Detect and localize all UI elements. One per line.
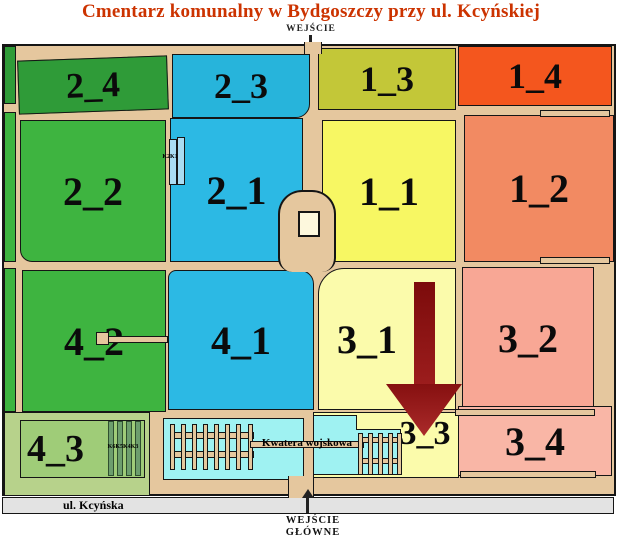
top-entrance-gap <box>304 42 322 54</box>
section-2-4: 2_4 <box>17 55 169 114</box>
section-1-1: 1_1 <box>322 120 456 262</box>
main-entrance-label: WEJŚCIE GŁÓWNE <box>253 515 373 538</box>
main-entrance-arrow-stem <box>306 497 309 513</box>
section-4-1: 4_1 <box>168 270 314 410</box>
section-label: 1_4 <box>508 55 562 97</box>
grave-column-bar <box>378 433 383 475</box>
edge-strip-row2 <box>4 112 16 262</box>
columbarium-k1 <box>177 137 185 185</box>
section-3-3-notch <box>356 415 401 430</box>
section-label: 2_1 <box>207 167 267 214</box>
grave-column-bar <box>397 433 402 475</box>
street-name-label: ul. Kcyńska <box>63 498 124 513</box>
section-label: 2_2 <box>63 168 123 215</box>
path-bar <box>455 409 595 416</box>
grave-column-bar <box>181 424 186 470</box>
k2k1-label: K2K1 <box>151 154 189 160</box>
path-bar <box>540 257 610 264</box>
main-entrance-line2: GŁÓWNE <box>253 527 373 539</box>
edge-strip-row1 <box>4 46 16 104</box>
grave-column-bar <box>388 433 393 475</box>
page-title: Cmentarz komunalny w Bydgoszczy przy ul.… <box>0 1 622 23</box>
section-label: 1_2 <box>509 165 569 212</box>
military-quarter-label: Kwatera wojskowa <box>248 437 366 449</box>
columbarium-k2 <box>169 139 177 185</box>
section-3-2: 3_2 <box>462 267 594 410</box>
cemetery-map: 2_4 2_3 1_3 1_4 2_2 2_1 1_1 1_2 4_2 4_1 … <box>2 44 616 496</box>
grave-column-bar <box>203 424 208 470</box>
military-graves-rows-west <box>170 424 254 470</box>
section-1-3: 1_3 <box>318 48 456 110</box>
edge-strip-row3 <box>4 268 16 412</box>
section-label: 3_1 <box>337 316 397 363</box>
section-label: 1_1 <box>359 168 419 215</box>
chapel-building <box>298 211 320 237</box>
section-1-2: 1_2 <box>464 115 614 262</box>
grave-column-bar <box>225 424 230 470</box>
path-bar <box>460 471 596 478</box>
section-label: 2_3 <box>214 65 268 107</box>
main-entrance-line1: WEJŚCIE <box>253 515 373 527</box>
path-bar <box>540 110 610 117</box>
section-2-2: 2_2 <box>20 120 166 262</box>
section-2-3: 2_3 <box>172 54 310 118</box>
grave-column-bar <box>192 424 197 470</box>
k6k5k4k3-label: K6K5K4K3 <box>100 444 146 450</box>
section-label: 1_3 <box>360 58 414 100</box>
grave-column-bar <box>236 424 241 470</box>
section-label: 3_4 <box>505 418 565 465</box>
top-entrance-label: WEJŚCIE <box>250 24 372 34</box>
section-label: 2_4 <box>65 63 120 107</box>
location-arrow-shaft <box>414 282 435 386</box>
grave-column-bar <box>368 433 373 475</box>
grave-column-bar <box>214 424 219 470</box>
section-3-4: 3_4 <box>458 406 612 476</box>
path-notch <box>102 336 168 343</box>
section-label: 3_2 <box>498 315 558 362</box>
small-building <box>96 332 109 345</box>
section-label: 4_3 <box>27 427 84 471</box>
section-label: 4_1 <box>211 317 271 364</box>
section-1-4: 1_4 <box>458 46 612 106</box>
grave-column-bar <box>170 424 175 470</box>
